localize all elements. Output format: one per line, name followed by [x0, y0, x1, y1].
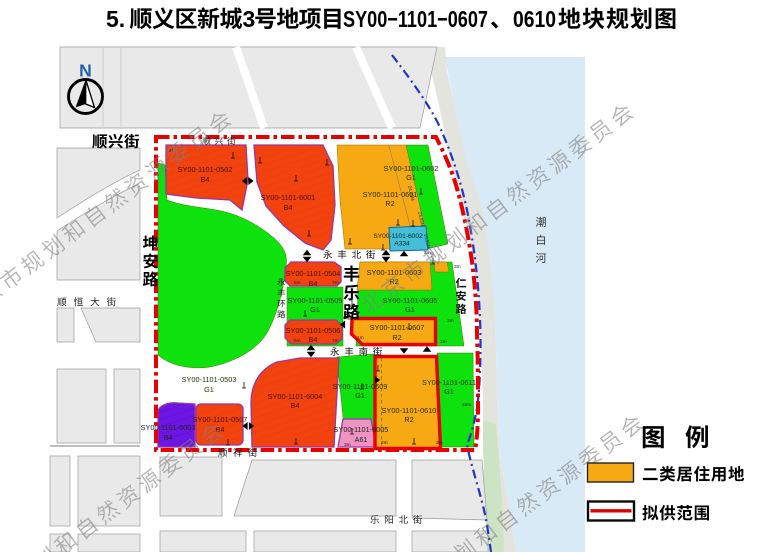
svg-text:R2: R2	[392, 333, 401, 342]
svg-text:SY00-1101-0504: SY00-1101-0504	[286, 269, 341, 278]
svg-text:A61: A61	[355, 435, 368, 444]
svg-text:3m: 3m	[454, 264, 461, 270]
svg-text:3m: 3m	[344, 442, 351, 448]
svg-text:SY00-1101-6003: SY00-1101-6003	[141, 423, 196, 432]
svg-text:B4: B4	[201, 175, 210, 184]
svg-text:SY00-1101-0503: SY00-1101-0503	[182, 375, 237, 384]
svg-text:B4: B4	[291, 401, 300, 410]
svg-text:SY00-1101-6004: SY00-1101-6004	[268, 392, 323, 401]
svg-text:5.: 5.	[106, 6, 125, 32]
svg-text:SY00-1101-0502: SY00-1101-0502	[178, 165, 233, 174]
svg-text:B4: B4	[164, 433, 173, 442]
svg-text:SY00-1101-6002: SY00-1101-6002	[373, 233, 423, 240]
svg-text:0610: 0610	[513, 6, 556, 32]
svg-text:N: N	[79, 61, 92, 81]
svg-text:7m: 7m	[332, 338, 339, 344]
svg-text:SY00-1101-0507: SY00-1101-0507	[193, 415, 248, 424]
svg-text:SY00-1101-0602: SY00-1101-0602	[384, 164, 439, 173]
svg-text:SY00-1101-0505: SY00-1101-0505	[288, 296, 343, 305]
svg-text:2m: 2m	[381, 440, 388, 446]
svg-text:SY00-1101-0506: SY00-1101-0506	[286, 326, 341, 335]
svg-text:R2: R2	[385, 199, 394, 208]
svg-text:B4: B4	[284, 203, 293, 212]
svg-text:5m: 5m	[294, 280, 301, 286]
svg-text:G1: G1	[204, 385, 214, 394]
svg-text:3: 3	[243, 6, 256, 32]
svg-text:G1: G1	[406, 173, 416, 182]
svg-text:R2: R2	[404, 415, 413, 424]
svg-text:7m: 7m	[332, 280, 339, 286]
svg-text:G1: G1	[355, 391, 365, 400]
svg-text:40m: 40m	[462, 402, 471, 408]
svg-text:G1: G1	[405, 305, 415, 314]
svg-text:G1: G1	[310, 305, 320, 314]
svg-text:5m: 5m	[294, 338, 301, 344]
svg-text:SY00-1101-0601: SY00-1101-0601	[363, 190, 418, 199]
svg-text:A334: A334	[394, 241, 410, 248]
svg-text:SY00-1101-0611: SY00-1101-0611	[422, 378, 476, 387]
svg-text:B4: B4	[309, 279, 318, 288]
svg-text:B4: B4	[309, 335, 318, 344]
svg-text:G1: G1	[444, 387, 454, 396]
svg-text:3m: 3m	[447, 318, 454, 324]
svg-text:1m: 1m	[357, 335, 364, 341]
svg-text:SY00-1101-0610: SY00-1101-0610	[382, 406, 437, 415]
svg-text:SY00−1101−0607: SY00−1101−0607	[343, 6, 488, 32]
svg-text:SY00-1101-6001: SY00-1101-6001	[261, 193, 316, 202]
svg-text:SY00-1101-0607: SY00-1101-0607	[370, 323, 425, 332]
svg-text:SY00-1101-6005: SY00-1101-6005	[334, 425, 389, 434]
svg-text:SY00-1101-0609: SY00-1101-0609	[333, 382, 388, 391]
svg-text:3m: 3m	[440, 339, 447, 345]
svg-text:2m: 2m	[436, 440, 443, 446]
